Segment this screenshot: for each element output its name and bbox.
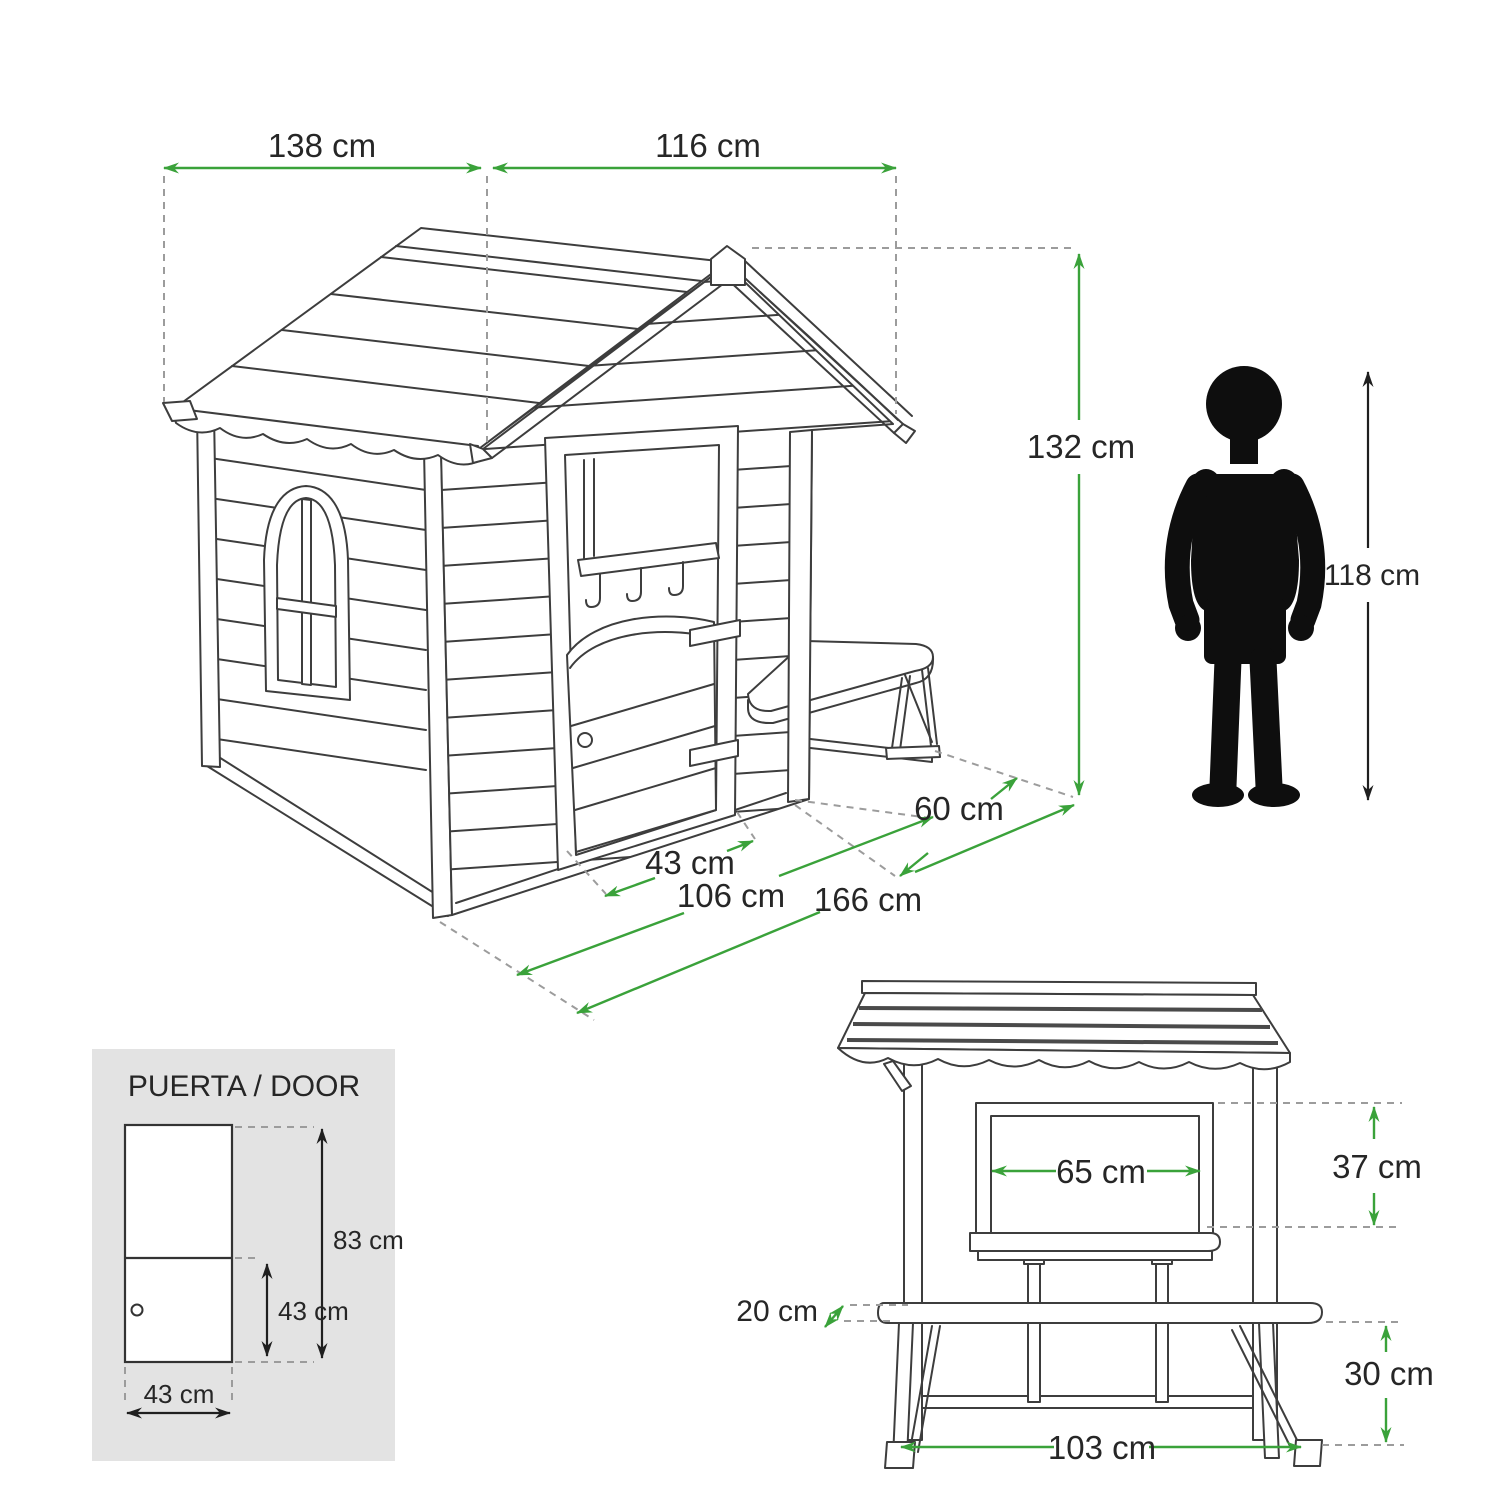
front-right-post [788, 430, 812, 802]
dimension-child-118: 118 cm [1324, 372, 1420, 800]
child-foot-left [1192, 783, 1244, 807]
front-view: 65 cm 37 cm 20 cm 30 cm 103 cm [736, 981, 1434, 1468]
dim-depth-label: 138 cm [268, 127, 376, 164]
panel-title: PUERTA / DOOR [128, 1070, 360, 1103]
child-silhouette [1175, 366, 1314, 807]
dimension-bench-height-30: 30 cm [1344, 1326, 1434, 1442]
diagram-canvas: 138 cm 116 cm 132 cm 43 cm 106 cm 166 cm [0, 0, 1500, 1500]
child-leg-left [1223, 660, 1228, 786]
door-knob [578, 733, 592, 747]
dimension-length-103: 103 cm [901, 1429, 1301, 1466]
bench-leg-brace [905, 675, 932, 742]
door-outline [125, 1125, 232, 1362]
fv-bench-top [878, 1303, 1322, 1323]
child-hand-left [1175, 615, 1201, 641]
door-knob-detail [132, 1305, 143, 1316]
window-mullion-vertical [302, 499, 311, 685]
child-neck [1230, 428, 1258, 464]
dim-front-label: 106 cm [677, 877, 785, 914]
dim-total-label: 166 cm [814, 881, 922, 918]
dimension-depth-138: 138 cm [164, 127, 481, 168]
fv-support-post-right [1156, 1262, 1168, 1402]
fv-window-sill [970, 1233, 1220, 1251]
fv-bench-foot-right [1294, 1440, 1322, 1466]
dim-child-label: 118 cm [1324, 559, 1420, 592]
dim-bench-depth-label: 20 cm [736, 1295, 818, 1328]
door-assembly [545, 426, 740, 870]
fv-sill-board [978, 1251, 1212, 1260]
fv-support-post-left [1028, 1262, 1040, 1402]
diagram-page: 138 cm 116 cm 132 cm 43 cm 106 cm 166 cm [0, 0, 1500, 1500]
roof-left-end-board [163, 401, 197, 421]
dim-door-height-label: 83 cm [333, 1225, 404, 1255]
dimension-width-116: 116 cm [493, 127, 896, 168]
arched-window [264, 486, 350, 700]
fv-roof [838, 981, 1290, 1069]
child-leg-right [1263, 660, 1269, 786]
dim-bench-height-label: 30 cm [1344, 1355, 1434, 1392]
dimension-window-height-37: 37 cm [1332, 1107, 1422, 1225]
dim-length-label: 103 cm [1048, 1429, 1156, 1466]
roof-ridge-cap [711, 246, 745, 285]
dim-door-width-label: 43 cm [144, 1379, 215, 1409]
dim-width-label: 116 cm [655, 127, 761, 164]
dimension-bench-60: 60 cm [900, 778, 1017, 876]
door-detail-panel: PUERTA / DOOR 83 cm 43 cm 43 cm [92, 1049, 404, 1461]
dim-bench-label: 60 cm [914, 790, 1004, 827]
isometric-playhouse-view [163, 228, 940, 918]
child-hand-right [1288, 615, 1314, 641]
dim-window-height-label: 37 cm [1332, 1148, 1422, 1185]
dim-door-lower-label: 43 cm [278, 1296, 349, 1326]
dimension-height-132: 132 cm [1027, 254, 1135, 795]
dim-door-label: 43 cm [645, 844, 735, 881]
dim-window-width-label: 65 cm [1056, 1153, 1146, 1190]
dimension-bench-depth-20: 20 cm [736, 1295, 843, 1328]
bench-foot [886, 746, 940, 759]
dim-height-label: 132 cm [1027, 428, 1135, 465]
child-foot-right [1248, 783, 1300, 807]
